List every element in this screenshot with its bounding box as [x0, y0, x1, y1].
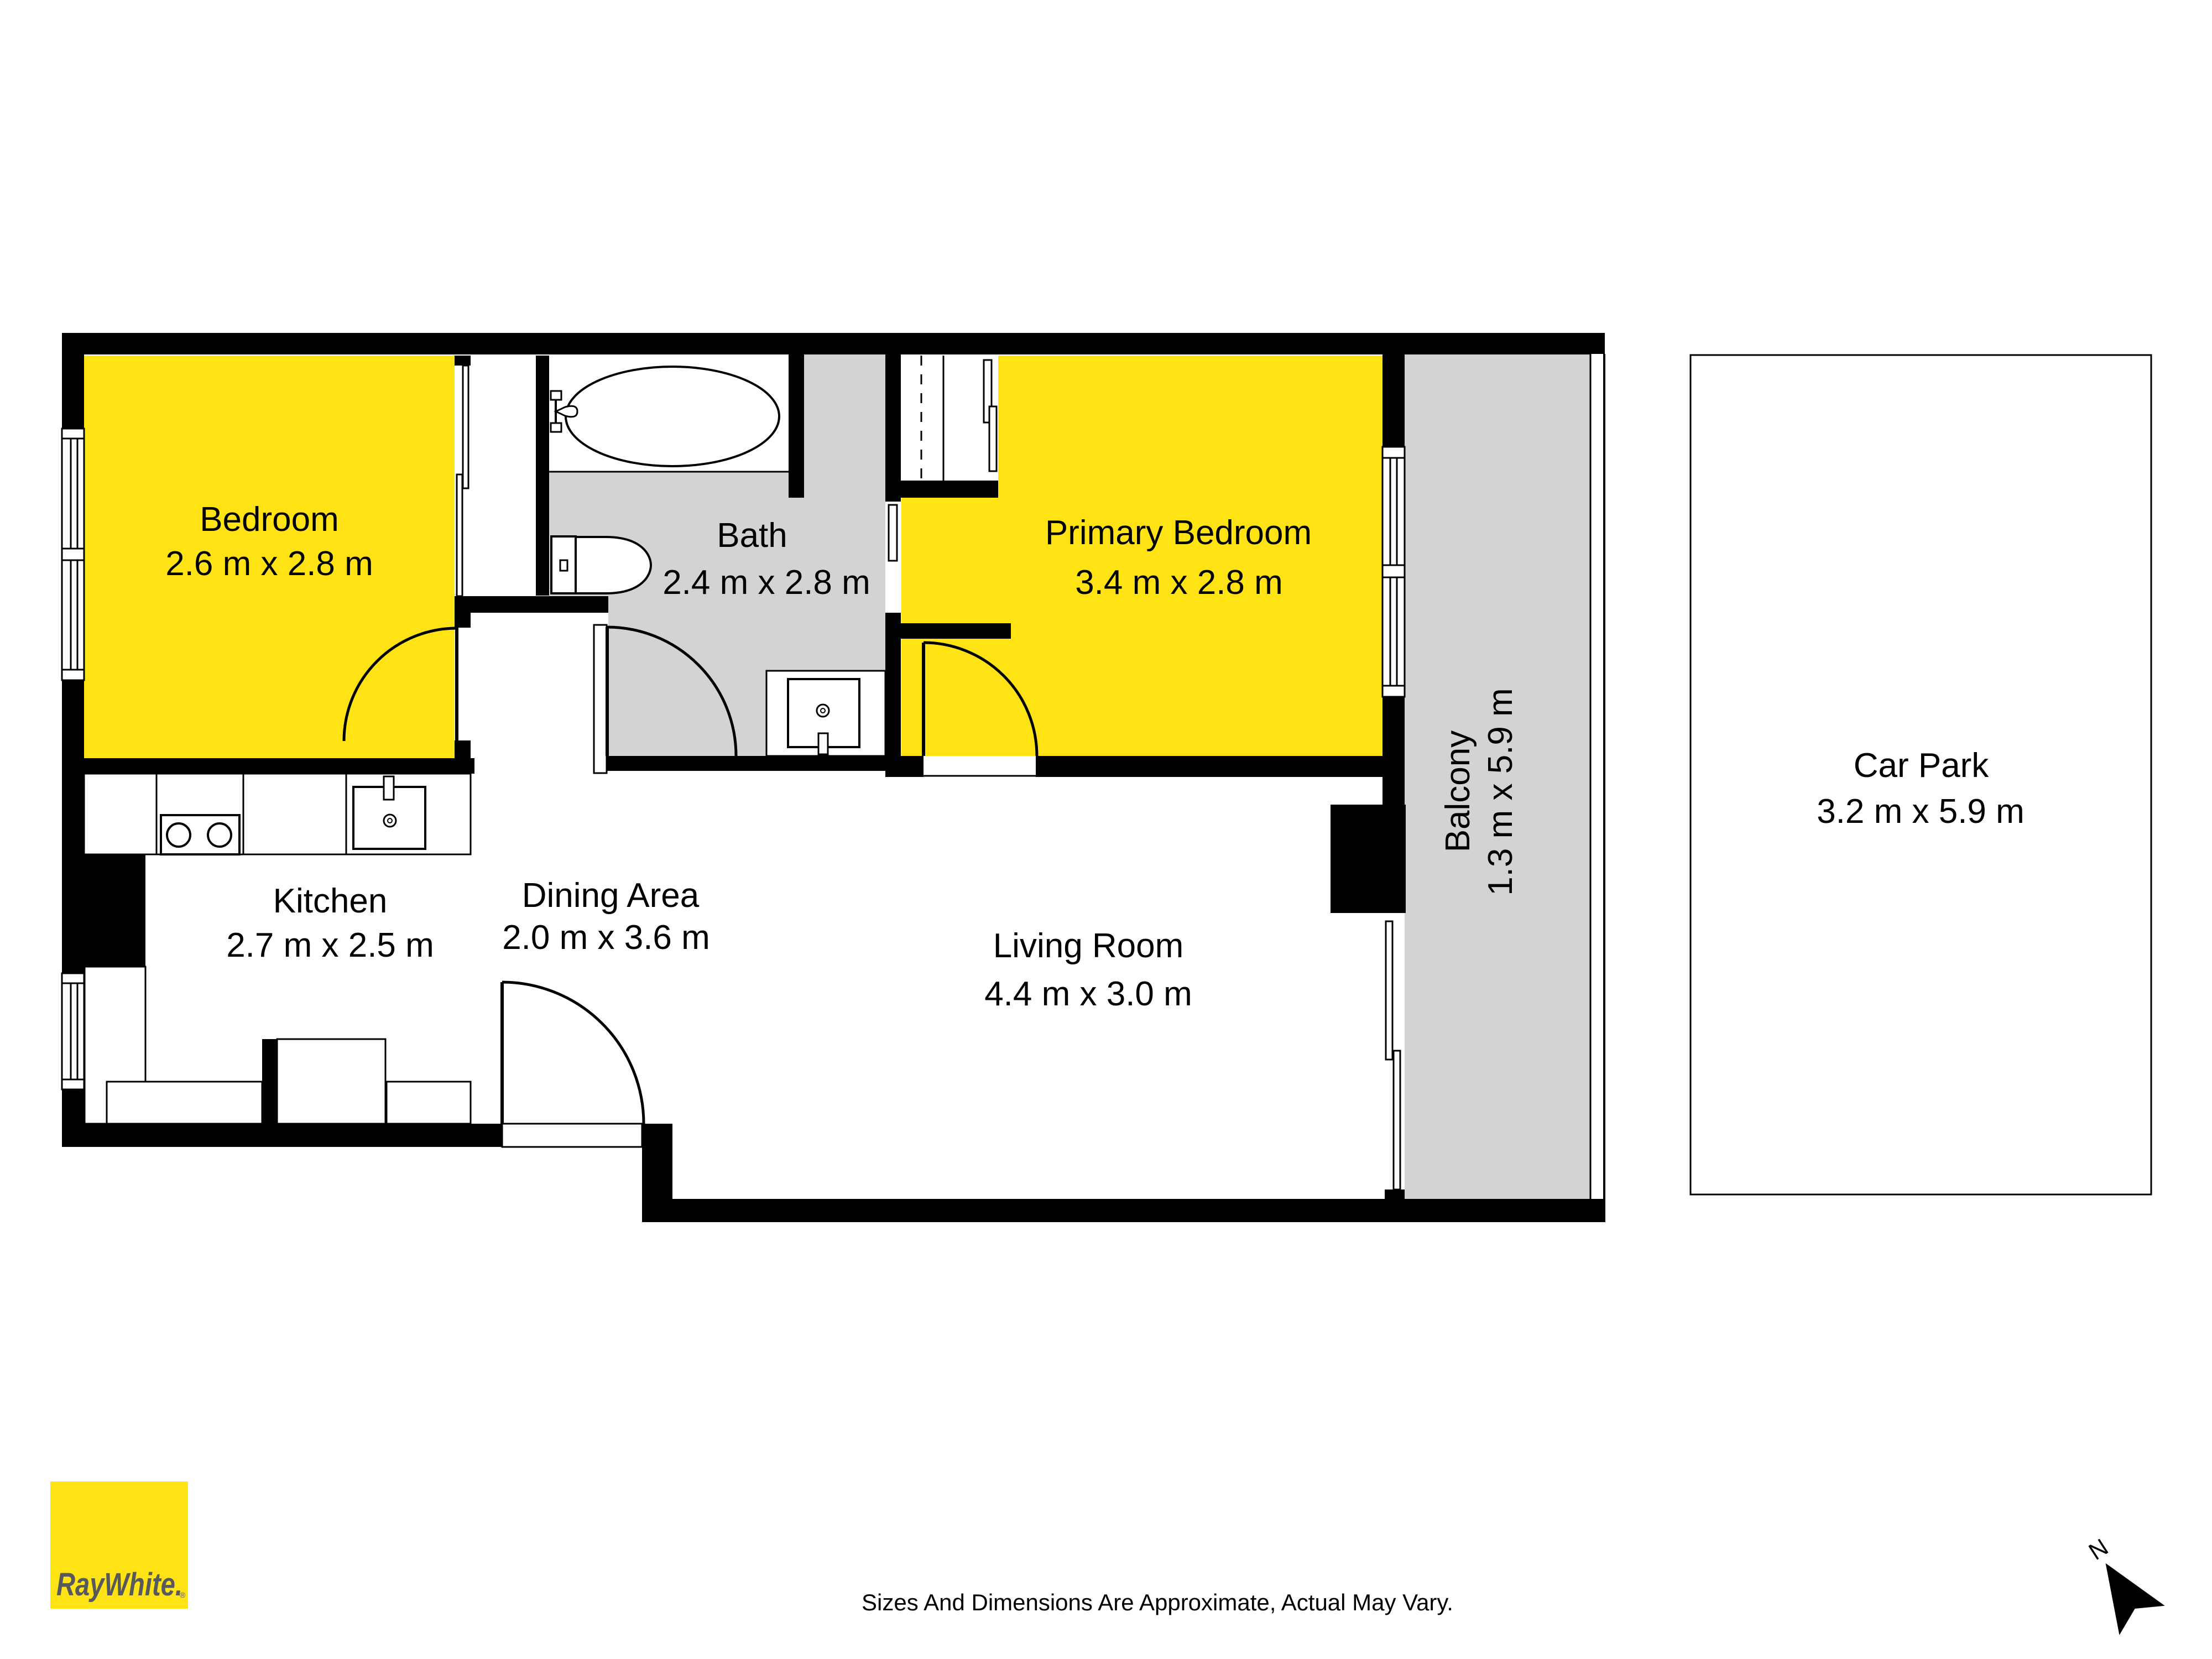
svg-text:3.4 m x 2.8 m: 3.4 m x 2.8 m: [1075, 564, 1283, 602]
svg-text:Balcony: Balcony: [1439, 731, 1477, 853]
svg-text:2.6 m x 2.8 m: 2.6 m x 2.8 m: [165, 545, 373, 583]
svg-text:Car Park: Car Park: [1854, 747, 1990, 785]
svg-text:Kitchen: Kitchen: [273, 882, 388, 920]
svg-text:2.0 m x 3.6 m: 2.0 m x 3.6 m: [502, 919, 710, 957]
svg-text:Primary Bedroom: Primary Bedroom: [1045, 514, 1312, 552]
svg-text:Living Room: Living Room: [993, 927, 1184, 965]
svg-text:2.7 m x 2.5 m: 2.7 m x 2.5 m: [226, 926, 434, 964]
svg-text:4.4 m x 3.0 m: 4.4 m x 3.0 m: [984, 975, 1192, 1013]
svg-text:RayWhite.: RayWhite.: [56, 1567, 182, 1603]
svg-text:®: ®: [180, 1590, 186, 1599]
svg-text:3.2 m x 5.9 m: 3.2 m x 5.9 m: [1817, 792, 2025, 831]
svg-text:Sizes And Dimensions Are Appro: Sizes And Dimensions Are Approximate, Ac…: [862, 1589, 1453, 1615]
svg-text:Bath: Bath: [717, 517, 787, 555]
svg-text:Bedroom: Bedroom: [200, 500, 339, 539]
svg-text:1.3 m x 5.9 m: 1.3 m x 5.9 m: [1481, 688, 1520, 896]
svg-text:2.4 m x 2.8 m: 2.4 m x 2.8 m: [662, 564, 870, 602]
svg-text:Dining Area: Dining Area: [522, 877, 700, 915]
